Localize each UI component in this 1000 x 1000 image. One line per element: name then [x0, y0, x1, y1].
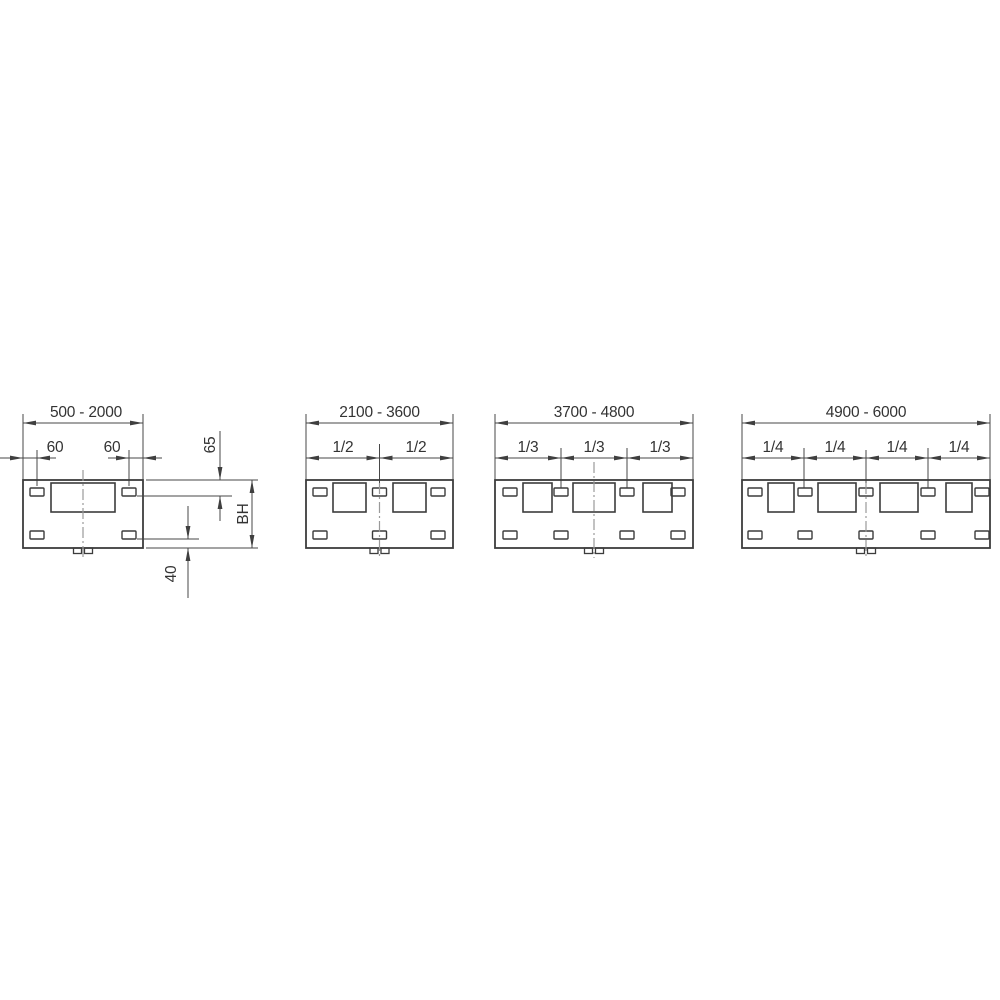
dim-label-65: 65 — [202, 437, 219, 454]
mounting-slot — [431, 531, 445, 539]
mounting-slot — [671, 488, 685, 496]
drawing-panel-2100-3600: 2100 - 3600 1/2 1/2 — [306, 404, 453, 558]
dim-label-60-right: 60 — [104, 439, 121, 456]
panel-cutout — [643, 483, 672, 512]
dimension-offset-left-60: 60 — [0, 439, 64, 458]
dimension-width-range: 4900 - 6000 — [742, 404, 990, 423]
dim-label-range: 4900 - 6000 — [826, 404, 907, 421]
mounting-slot — [671, 531, 685, 539]
panel-cutout — [333, 483, 366, 512]
dimension-top-to-slot-65: 65 — [202, 431, 220, 521]
mounting-slot — [975, 488, 989, 496]
mounting-slot — [748, 531, 762, 539]
dimension-offset-right-60: 60 — [104, 439, 162, 458]
mounting-slot — [431, 488, 445, 496]
dimension-width-range: 500 - 2000 — [23, 404, 143, 423]
dim-label-40: 40 — [163, 565, 180, 582]
drawing-panel-500-2000: 500 - 2000 60 60 — [0, 404, 258, 598]
mounting-slot — [921, 488, 935, 496]
dim-label-BH: BH — [235, 503, 252, 524]
dim-label-range: 500 - 2000 — [50, 404, 123, 421]
dimension-width-range: 3700 - 4800 — [495, 404, 693, 423]
mounting-slot — [122, 531, 136, 539]
panel-cutout — [523, 483, 552, 512]
dim-label-third-1: 1/3 — [518, 439, 539, 456]
mounting-slot — [503, 531, 517, 539]
mounting-slot — [554, 531, 568, 539]
dim-label-quarter-4: 1/4 — [949, 439, 971, 456]
panel-cutout — [946, 483, 972, 512]
dim-label-half-1: 1/2 — [333, 439, 354, 456]
dim-label-third-2: 1/3 — [584, 439, 605, 456]
drawing-panel-4900-6000: 4900 - 6000 1/4 1/4 1/4 1/4 — [742, 404, 990, 558]
mounting-slot — [975, 531, 989, 539]
mounting-slot — [921, 531, 935, 539]
panel-cutout — [393, 483, 426, 512]
mounting-slot — [30, 531, 44, 539]
dim-label-range: 3700 - 4800 — [554, 404, 635, 421]
mounting-slot — [503, 488, 517, 496]
mounting-slot — [798, 531, 812, 539]
dim-label-third-3: 1/3 — [650, 439, 671, 456]
mounting-slot — [798, 488, 812, 496]
dim-label-60-left: 60 — [47, 439, 64, 456]
mounting-slot — [122, 488, 136, 496]
drawing-panel-3700-4800: 3700 - 4800 1/3 1/3 1/3 — [495, 404, 693, 558]
technical-diagram-canvas: 500 - 2000 60 60 — [0, 0, 1000, 1000]
dim-label-quarter-3: 1/4 — [887, 439, 909, 456]
panel-cutout — [818, 483, 856, 512]
mounting-slot — [748, 488, 762, 496]
dimension-width-range: 2100 - 3600 — [306, 404, 453, 423]
dimension-panel-height-BH: BH — [235, 480, 252, 548]
mounting-slot — [313, 488, 327, 496]
panel-cutout — [880, 483, 918, 512]
dimension-fraction: 1/3 1/3 1/3 — [495, 439, 693, 458]
dim-label-half-2: 1/2 — [406, 439, 427, 456]
mounting-slot — [620, 531, 634, 539]
mounting-slot — [30, 488, 44, 496]
mounting-slot — [313, 531, 327, 539]
dimension-bottom-to-slot-40: 40 — [163, 506, 188, 598]
dim-label-quarter-2: 1/4 — [825, 439, 847, 456]
mounting-slot — [620, 488, 634, 496]
dim-label-quarter-1: 1/4 — [763, 439, 785, 456]
dim-label-range: 2100 - 3600 — [339, 404, 420, 421]
panel-dimension-diagram: 500 - 2000 60 60 — [0, 0, 1000, 1000]
mounting-slot — [554, 488, 568, 496]
panel-cutout — [768, 483, 794, 512]
